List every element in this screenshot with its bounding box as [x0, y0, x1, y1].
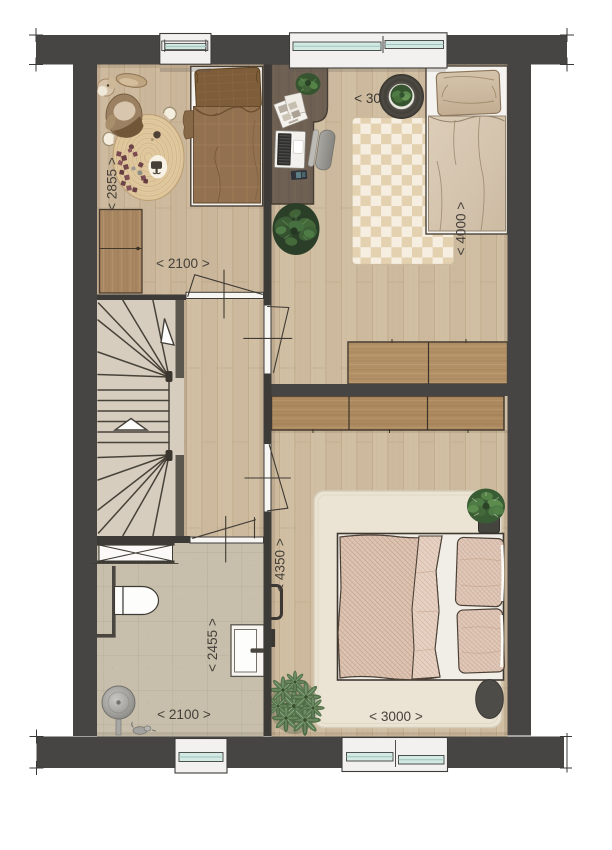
svg-text:< 2855 >: < 2855 >	[105, 157, 120, 211]
svg-text:< 2100 >: < 2100 >	[156, 256, 210, 271]
svg-text:< 2455 >: < 2455 >	[205, 618, 220, 672]
svg-text:< 2100 >: < 2100 >	[157, 707, 211, 722]
svg-text:< 3000 >: < 3000 >	[369, 709, 423, 724]
svg-text:< 4350 >: < 4350 >	[273, 538, 288, 592]
svg-text:< 4000 >: < 4000 >	[454, 202, 469, 256]
